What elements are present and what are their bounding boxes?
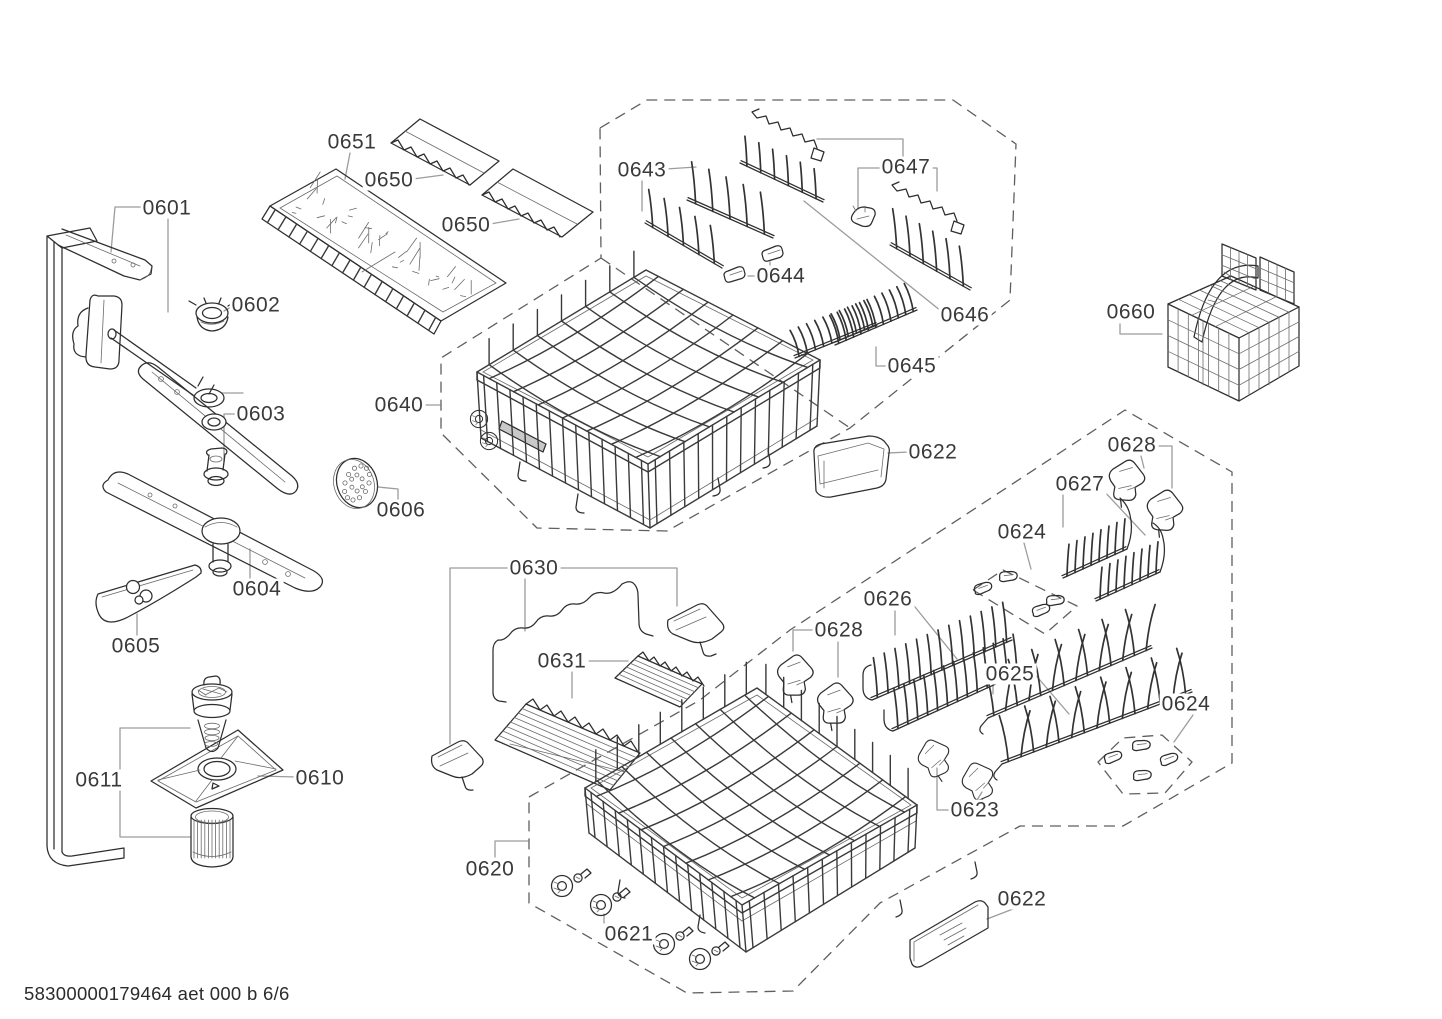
part-label-0603-2: 0603: [235, 404, 288, 425]
part-label-0644-24: 0644: [755, 266, 808, 287]
part-label-0630-20: 0630: [508, 558, 561, 579]
part-label-0601-0: 0601: [141, 198, 194, 219]
part-label-0624-14: 0624: [1160, 694, 1213, 715]
part-label-0623-12: 0623: [949, 800, 1002, 821]
part-label-0622-11: 0622: [996, 889, 1049, 910]
part-0603-upper-spray-arm: [138, 363, 297, 494]
part-label-0628-18: 0628: [1106, 435, 1159, 456]
part-0627-small-racks: [1062, 498, 1165, 601]
part-label-0625-15: 0625: [984, 664, 1037, 685]
part-label-0605-4: 0605: [110, 636, 163, 657]
part-label-0604-3: 0604: [231, 579, 284, 600]
part-0646-pin-row: [890, 209, 971, 290]
part-label-0640-22: 0640: [373, 395, 426, 416]
part-0651-bristle-tray: [262, 169, 506, 334]
exploded-parts-drawing: [0, 0, 1442, 1019]
parts-diagram-page: 0601060206030604060506060610061106200621…: [0, 0, 1442, 1019]
part-0620-lower-basket: [585, 662, 977, 952]
part-label-0628-19: 0628: [813, 620, 866, 641]
part-label-0643-23: 0643: [616, 160, 669, 181]
part-label-0645-25: 0645: [886, 356, 939, 377]
part-0640-upper-basket: [470, 251, 820, 528]
part-0643-pin-rows: [645, 136, 824, 268]
part-0611-cylinder-filter: [191, 809, 233, 868]
part-label-0621-9: 0621: [603, 924, 656, 945]
part-0622-tray: [910, 901, 988, 967]
part-0630-fold-wire: [432, 582, 724, 790]
part-0604-lower-spray-arm: [103, 472, 323, 591]
part-0605-filter-screen: [96, 565, 201, 622]
part-0660-cutlery-basket: [1168, 244, 1299, 401]
part-label-0622-10: 0622: [907, 442, 960, 463]
part-label-0620-8: 0620: [464, 859, 517, 880]
document-number: 58300000179464 aet 000 b 6/6: [24, 983, 290, 1005]
part-0611-micro-filter: [192, 676, 232, 752]
part-0645-fold-racks: [790, 284, 917, 358]
part-0624-clip-set-a: [974, 570, 1065, 617]
part-label-0602-1: 0602: [230, 295, 283, 316]
part-label-0606-5: 0606: [375, 500, 428, 521]
part-label-0650-29: 0650: [440, 215, 493, 236]
part-0628-clamps-left: [774, 653, 854, 732]
part-label-0627-17: 0627: [1054, 474, 1107, 495]
part-0631-comb-strips: [495, 652, 704, 790]
part-label-0626-16: 0626: [862, 589, 915, 610]
part-0622-door-bin: [814, 436, 889, 497]
part-0625-plate-rack: [980, 605, 1192, 781]
part-label-0647-27: 0647: [880, 157, 933, 178]
part-label-0651-30: 0651: [326, 132, 379, 153]
part-0650-serrated-insert-b: [482, 169, 593, 237]
part-0610-filter-plate: [151, 730, 283, 808]
part-label-0650-28: 0650: [363, 170, 416, 191]
part-label-0610-6: 0610: [294, 768, 347, 789]
part-label-0660-31: 0660: [1105, 302, 1158, 323]
part-label-0646-26: 0646: [939, 305, 992, 326]
part-label-0624-13: 0624: [996, 522, 1049, 543]
part-label-0611-7: 0611: [73, 770, 124, 791]
part-label-0631-21: 0631: [536, 651, 589, 672]
